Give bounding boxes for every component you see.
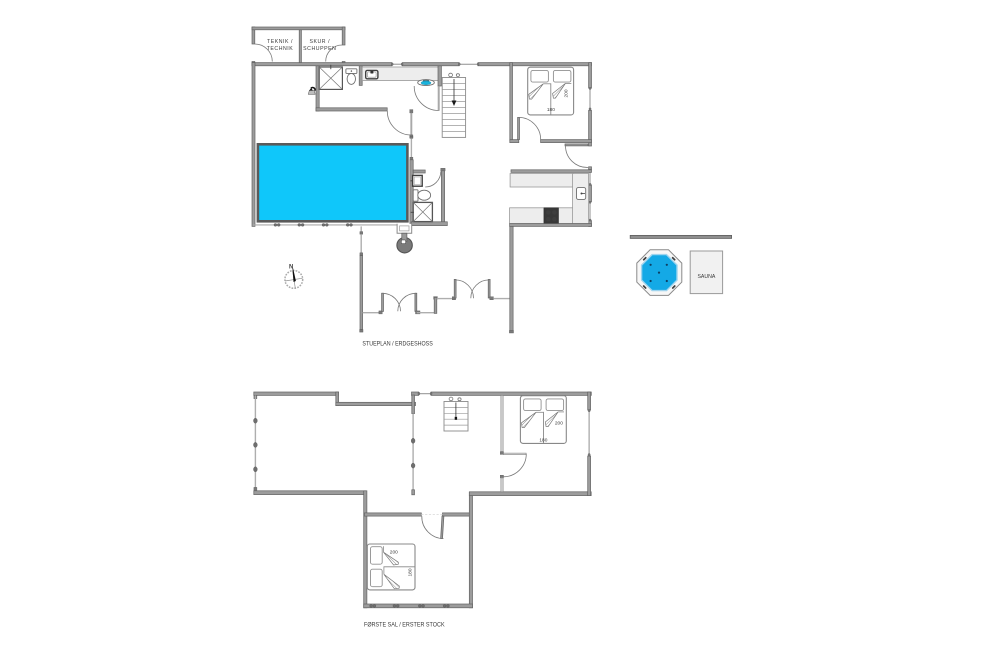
svg-text:180: 180 — [539, 438, 547, 444]
svg-text:200: 200 — [564, 89, 570, 97]
svg-text:SCHUPPEN: SCHUPPEN — [303, 46, 336, 52]
svg-text:FØRSTE SAL / ERSTER STOCK: FØRSTE SAL / ERSTER STOCK — [364, 622, 445, 629]
svg-text:TECHNIK: TECHNIK — [267, 46, 294, 52]
svg-text:180: 180 — [407, 568, 413, 576]
svg-text:SKUR /: SKUR / — [309, 39, 330, 45]
svg-text:200: 200 — [390, 550, 398, 556]
svg-text:200: 200 — [555, 421, 563, 427]
svg-text:STUEPLAN / ERDGESHOSS: STUEPLAN / ERDGESHOSS — [362, 341, 433, 348]
svg-text:TEKNIK /: TEKNIK / — [267, 39, 293, 45]
svg-text:180: 180 — [547, 107, 555, 113]
svg-text:SAUNA: SAUNA — [697, 274, 715, 280]
